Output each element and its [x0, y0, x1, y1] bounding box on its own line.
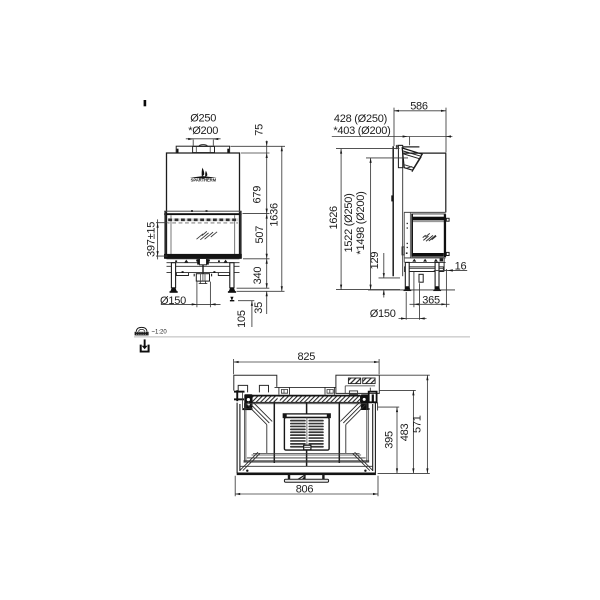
svg-text:340: 340 — [252, 267, 264, 285]
svg-text:Ø150: Ø150 — [370, 308, 396, 320]
svg-text:*403 (Ø200): *403 (Ø200) — [333, 125, 390, 137]
svg-text:806: 806 — [296, 484, 314, 496]
svg-text:586: 586 — [410, 100, 428, 112]
svg-text:571: 571 — [412, 415, 424, 433]
svg-text:Ø150: Ø150 — [160, 295, 186, 307]
svg-text:483: 483 — [399, 423, 411, 441]
svg-text:1636: 1636 — [269, 203, 281, 227]
svg-text:397±15: 397±15 — [146, 222, 158, 257]
svg-text:507: 507 — [254, 226, 266, 244]
svg-text:105: 105 — [236, 310, 248, 328]
svg-text:129: 129 — [369, 252, 381, 270]
svg-text:SPARTHERM: SPARTHERM — [191, 177, 217, 182]
svg-text:825: 825 — [297, 351, 315, 363]
svg-text:428 (Ø250): 428 (Ø250) — [334, 113, 387, 125]
svg-text:Ø250: Ø250 — [190, 113, 216, 125]
svg-text:35: 35 — [253, 302, 265, 314]
svg-text:*1498 (Ø200): *1498 (Ø200) — [355, 191, 367, 254]
svg-text:365: 365 — [422, 294, 440, 306]
svg-text:75: 75 — [253, 124, 265, 136]
svg-text:~1:20: ~1:20 — [152, 329, 168, 335]
svg-text:395: 395 — [384, 431, 396, 449]
svg-text:1626: 1626 — [328, 206, 340, 230]
svg-text:679: 679 — [252, 186, 264, 204]
svg-text:16: 16 — [455, 261, 467, 273]
svg-text:*Ø200: *Ø200 — [188, 125, 218, 137]
svg-text:1522 (Ø250): 1522 (Ø250) — [343, 193, 355, 252]
